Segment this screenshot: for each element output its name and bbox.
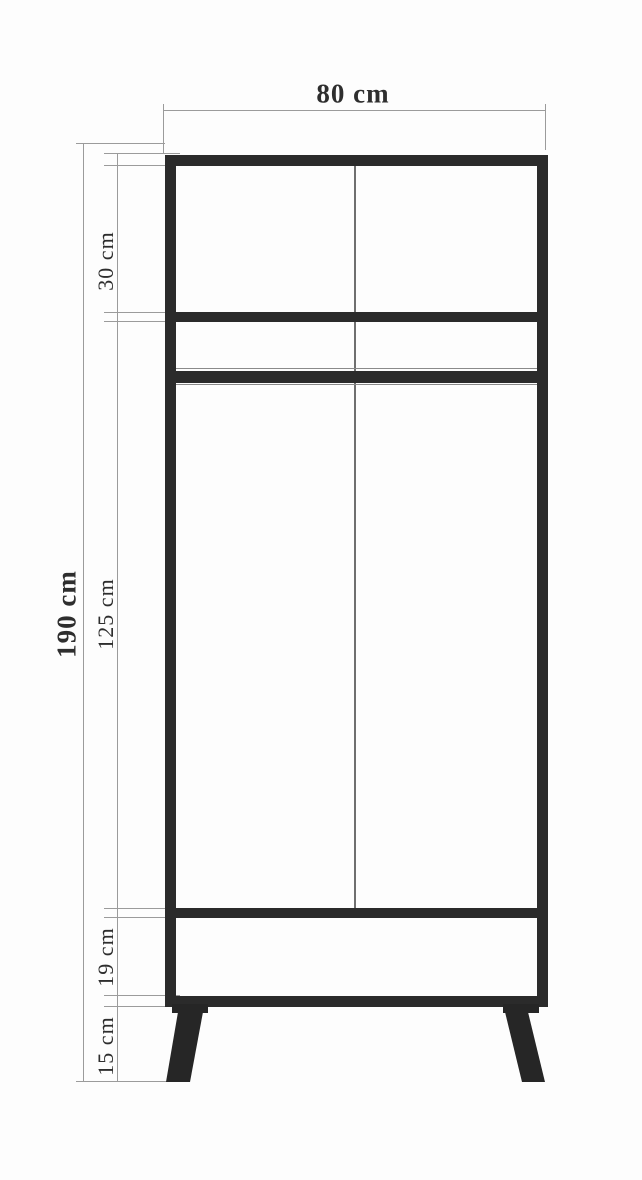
hanging-rail-bar (176, 371, 537, 383)
top-shelf-line (176, 312, 537, 322)
left-leg (158, 1012, 208, 1082)
bottom-shelf-line (176, 908, 537, 918)
hanging-rail-bottom-edge (176, 384, 537, 385)
floor-level-tick (76, 1081, 170, 1082)
right-leg (500, 1012, 550, 1082)
right-leg-mounting-plate (503, 1004, 539, 1013)
overall-height-dimension-line (83, 143, 84, 1081)
width-dimension-label: 80 cm (316, 79, 389, 110)
cabinet-top-outer-tick (104, 153, 180, 154)
overall-height-dimension-label: 190 cm (52, 570, 83, 658)
wardrobe-carcass-outline (165, 155, 548, 1007)
overall-height-top-tick (76, 143, 165, 144)
width-dimension-line (163, 110, 545, 111)
middle-section-dimension-label: 125 cm (93, 578, 119, 649)
width-extension-line-left (163, 104, 164, 153)
wardrobe-dimension-diagram: 80 cm 190 cm 30 cm 125 cm 19 cm 15 cm (0, 0, 642, 1180)
bottom-section-dimension-label: 19 cm (93, 927, 119, 986)
legs-dimension-label: 15 cm (93, 1016, 119, 1075)
door-divider-line (354, 166, 356, 908)
hanging-rail-top-edge (176, 368, 537, 369)
left-leg-mounting-plate (172, 1004, 208, 1013)
width-extension-line-right (545, 104, 546, 150)
top-section-dimension-label: 30 cm (93, 231, 119, 290)
